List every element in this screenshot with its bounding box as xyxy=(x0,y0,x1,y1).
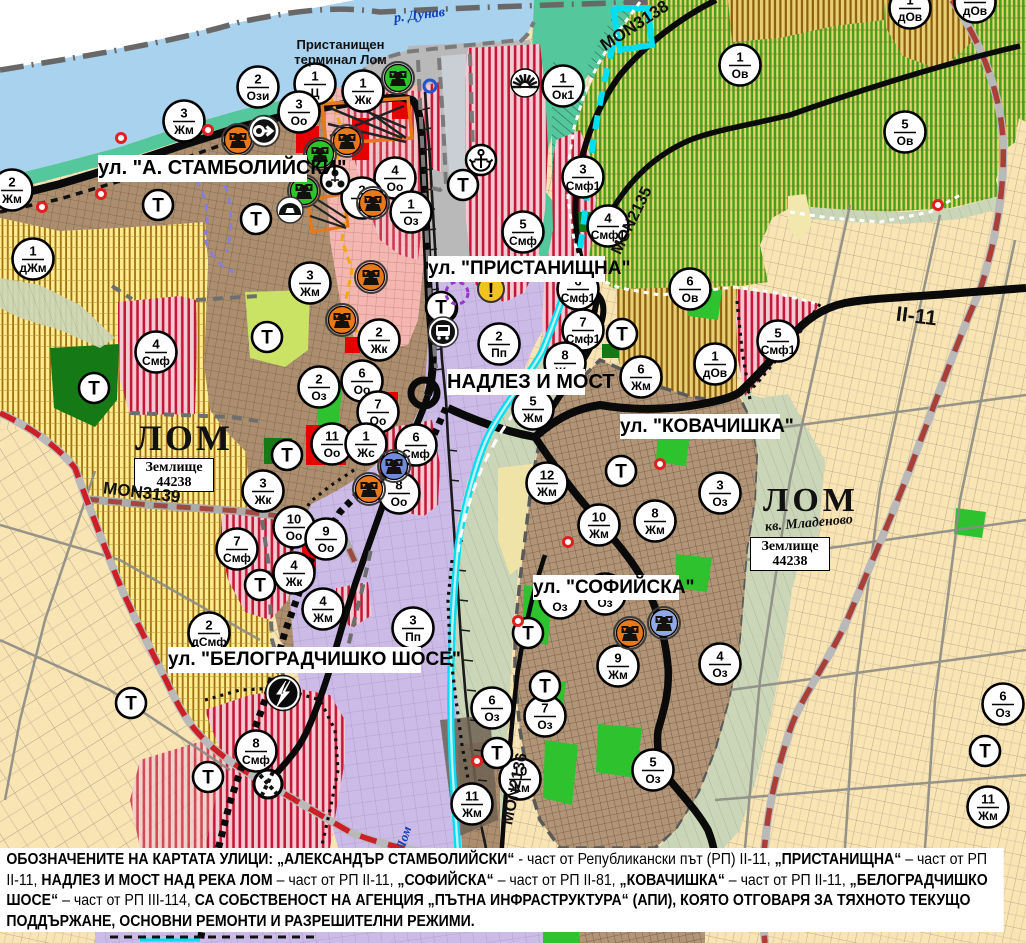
svg-text:4: 4 xyxy=(290,558,298,573)
svg-text:дОв: дОв xyxy=(963,4,987,18)
svg-text:4: 4 xyxy=(152,337,160,352)
svg-text:5: 5 xyxy=(529,394,536,409)
svg-text:Оз: Оз xyxy=(537,718,552,732)
svg-text:Т: Т xyxy=(254,576,266,597)
svg-text:4: 4 xyxy=(716,649,724,664)
svg-text:3: 3 xyxy=(180,106,187,121)
svg-text:Оо: Оо xyxy=(291,114,308,128)
svg-text:дЖм: дЖм xyxy=(19,261,46,275)
svg-text:11: 11 xyxy=(465,789,479,804)
svg-text:Т: Т xyxy=(491,744,503,765)
svg-text:Ов: Ов xyxy=(682,291,699,305)
svg-text:Т: Т xyxy=(435,298,447,319)
svg-text:!: ! xyxy=(488,280,495,302)
svg-text:Т: Т xyxy=(979,742,991,763)
svg-text:2: 2 xyxy=(205,618,212,633)
svg-text:Жм: Жм xyxy=(1,192,22,206)
svg-text:Оз: Оз xyxy=(712,666,727,680)
svg-text:1: 1 xyxy=(971,0,978,2)
svg-text:Оз: Оз xyxy=(645,772,660,786)
svg-text:4: 4 xyxy=(391,163,399,178)
svg-text:Смф: Смф xyxy=(402,447,430,461)
svg-text:2: 2 xyxy=(254,72,261,87)
svg-text:1: 1 xyxy=(29,244,36,259)
svg-text:9: 9 xyxy=(322,524,329,539)
svg-text:Жк: Жк xyxy=(354,93,373,107)
svg-text:Жм: Жм xyxy=(644,523,665,537)
svg-text:Пп: Пп xyxy=(405,630,421,644)
svg-text:Жм: Жм xyxy=(522,411,543,425)
svg-text:Жк: Жк xyxy=(254,493,273,507)
svg-text:Жм: Жм xyxy=(588,527,609,541)
svg-text:10: 10 xyxy=(592,510,606,525)
svg-text:Смф: Смф xyxy=(223,551,251,565)
svg-text:1: 1 xyxy=(311,69,318,84)
svg-text:2: 2 xyxy=(315,372,322,387)
svg-text:6: 6 xyxy=(488,693,495,708)
svg-text:Смф1: Смф1 xyxy=(566,179,601,193)
svg-text:Ок1: Ок1 xyxy=(552,88,574,102)
svg-text:11: 11 xyxy=(325,429,339,444)
svg-text:Т: Т xyxy=(152,196,164,217)
svg-text:Жм: Жм xyxy=(299,285,320,299)
svg-text:6: 6 xyxy=(358,366,365,381)
svg-text:Жм: Жм xyxy=(312,611,333,625)
svg-text:Оо: Оо xyxy=(387,180,404,194)
svg-text:6: 6 xyxy=(412,430,419,445)
svg-text:Т: Т xyxy=(125,694,137,715)
svg-text:2: 2 xyxy=(495,329,502,344)
svg-text:5: 5 xyxy=(901,117,908,132)
svg-text:2: 2 xyxy=(8,175,15,190)
svg-text:10: 10 xyxy=(287,512,301,527)
svg-text:3: 3 xyxy=(295,97,302,112)
svg-text:1: 1 xyxy=(906,0,913,8)
svg-text:3: 3 xyxy=(716,478,723,493)
svg-text:8: 8 xyxy=(252,736,259,751)
svg-text:3: 3 xyxy=(409,613,416,628)
svg-text:6: 6 xyxy=(686,274,693,289)
svg-text:1: 1 xyxy=(362,429,369,444)
svg-text:Жм: Жм xyxy=(607,668,628,682)
svg-text:Ози: Ози xyxy=(247,89,270,103)
svg-text:Жм: Жм xyxy=(461,806,482,820)
svg-text:Пп: Пп xyxy=(491,346,507,360)
svg-text:1: 1 xyxy=(711,349,718,364)
svg-text:8: 8 xyxy=(651,506,658,521)
svg-text:Жм: Жм xyxy=(173,123,194,137)
svg-text:Жм: Жм xyxy=(536,485,557,499)
svg-text:Смф: Смф xyxy=(142,354,170,368)
svg-text:Т: Т xyxy=(281,446,293,467)
svg-text:Жс: Жс xyxy=(356,446,375,460)
svg-text:3: 3 xyxy=(259,476,266,491)
svg-text:8: 8 xyxy=(561,348,568,363)
svg-text:7: 7 xyxy=(579,315,586,330)
svg-text:7: 7 xyxy=(233,534,240,549)
svg-text:1: 1 xyxy=(559,71,566,86)
svg-text:12: 12 xyxy=(540,468,554,483)
svg-text:11: 11 xyxy=(981,792,995,807)
svg-text:5: 5 xyxy=(519,217,526,232)
svg-text:Оо: Оо xyxy=(391,495,408,509)
svg-text:Оз: Оз xyxy=(484,710,499,724)
svg-text:1: 1 xyxy=(359,76,366,91)
svg-text:1: 1 xyxy=(736,50,743,65)
svg-text:7: 7 xyxy=(374,397,381,412)
svg-text:5: 5 xyxy=(649,755,656,770)
svg-text:Жм: Жм xyxy=(977,809,998,823)
svg-text:Оо: Оо xyxy=(324,446,341,460)
svg-text:Оз: Оз xyxy=(403,214,418,228)
svg-text:2: 2 xyxy=(375,325,382,340)
svg-text:9: 9 xyxy=(614,651,621,666)
svg-text:Т: Т xyxy=(88,379,100,400)
svg-text:Смф: Смф xyxy=(509,234,537,248)
svg-text:Ов: Ов xyxy=(897,134,914,148)
svg-text:5: 5 xyxy=(774,326,781,341)
svg-text:Т: Т xyxy=(202,768,214,789)
svg-text:4: 4 xyxy=(319,594,327,609)
svg-text:Смф: Смф xyxy=(242,753,270,767)
svg-text:Смф1: Смф1 xyxy=(761,343,796,357)
svg-text:дОв: дОв xyxy=(898,10,922,24)
svg-text:Т: Т xyxy=(615,462,627,483)
svg-text:3: 3 xyxy=(579,162,586,177)
svg-text:Оз: Оз xyxy=(712,495,727,509)
svg-text:Оз: Оз xyxy=(552,600,567,614)
svg-text:Т: Т xyxy=(539,677,551,698)
svg-text:Оо: Оо xyxy=(286,529,303,543)
svg-text:Ов: Ов xyxy=(732,67,749,81)
svg-text:6: 6 xyxy=(999,689,1006,704)
svg-text:Т: Т xyxy=(616,325,628,346)
svg-text:Жк: Жк xyxy=(285,575,304,589)
svg-text:7: 7 xyxy=(541,701,548,716)
svg-text:Т: Т xyxy=(250,210,262,231)
svg-text:4: 4 xyxy=(604,211,612,226)
svg-text:Жм: Жм xyxy=(630,379,651,393)
svg-text:Жк: Жк xyxy=(370,342,389,356)
svg-text:1: 1 xyxy=(407,197,414,212)
svg-text:Оо: Оо xyxy=(318,541,335,555)
svg-text:Т: Т xyxy=(522,624,534,645)
svg-text:Т: Т xyxy=(261,328,273,349)
svg-text:3: 3 xyxy=(306,268,313,283)
svg-text:Т: Т xyxy=(457,176,469,197)
svg-text:Оз: Оз xyxy=(995,706,1010,720)
svg-text:Смф1: Смф1 xyxy=(561,291,596,305)
svg-text:6: 6 xyxy=(637,362,644,377)
svg-text:Оз: Оз xyxy=(311,389,326,403)
svg-text:дОв: дОв xyxy=(703,366,727,380)
